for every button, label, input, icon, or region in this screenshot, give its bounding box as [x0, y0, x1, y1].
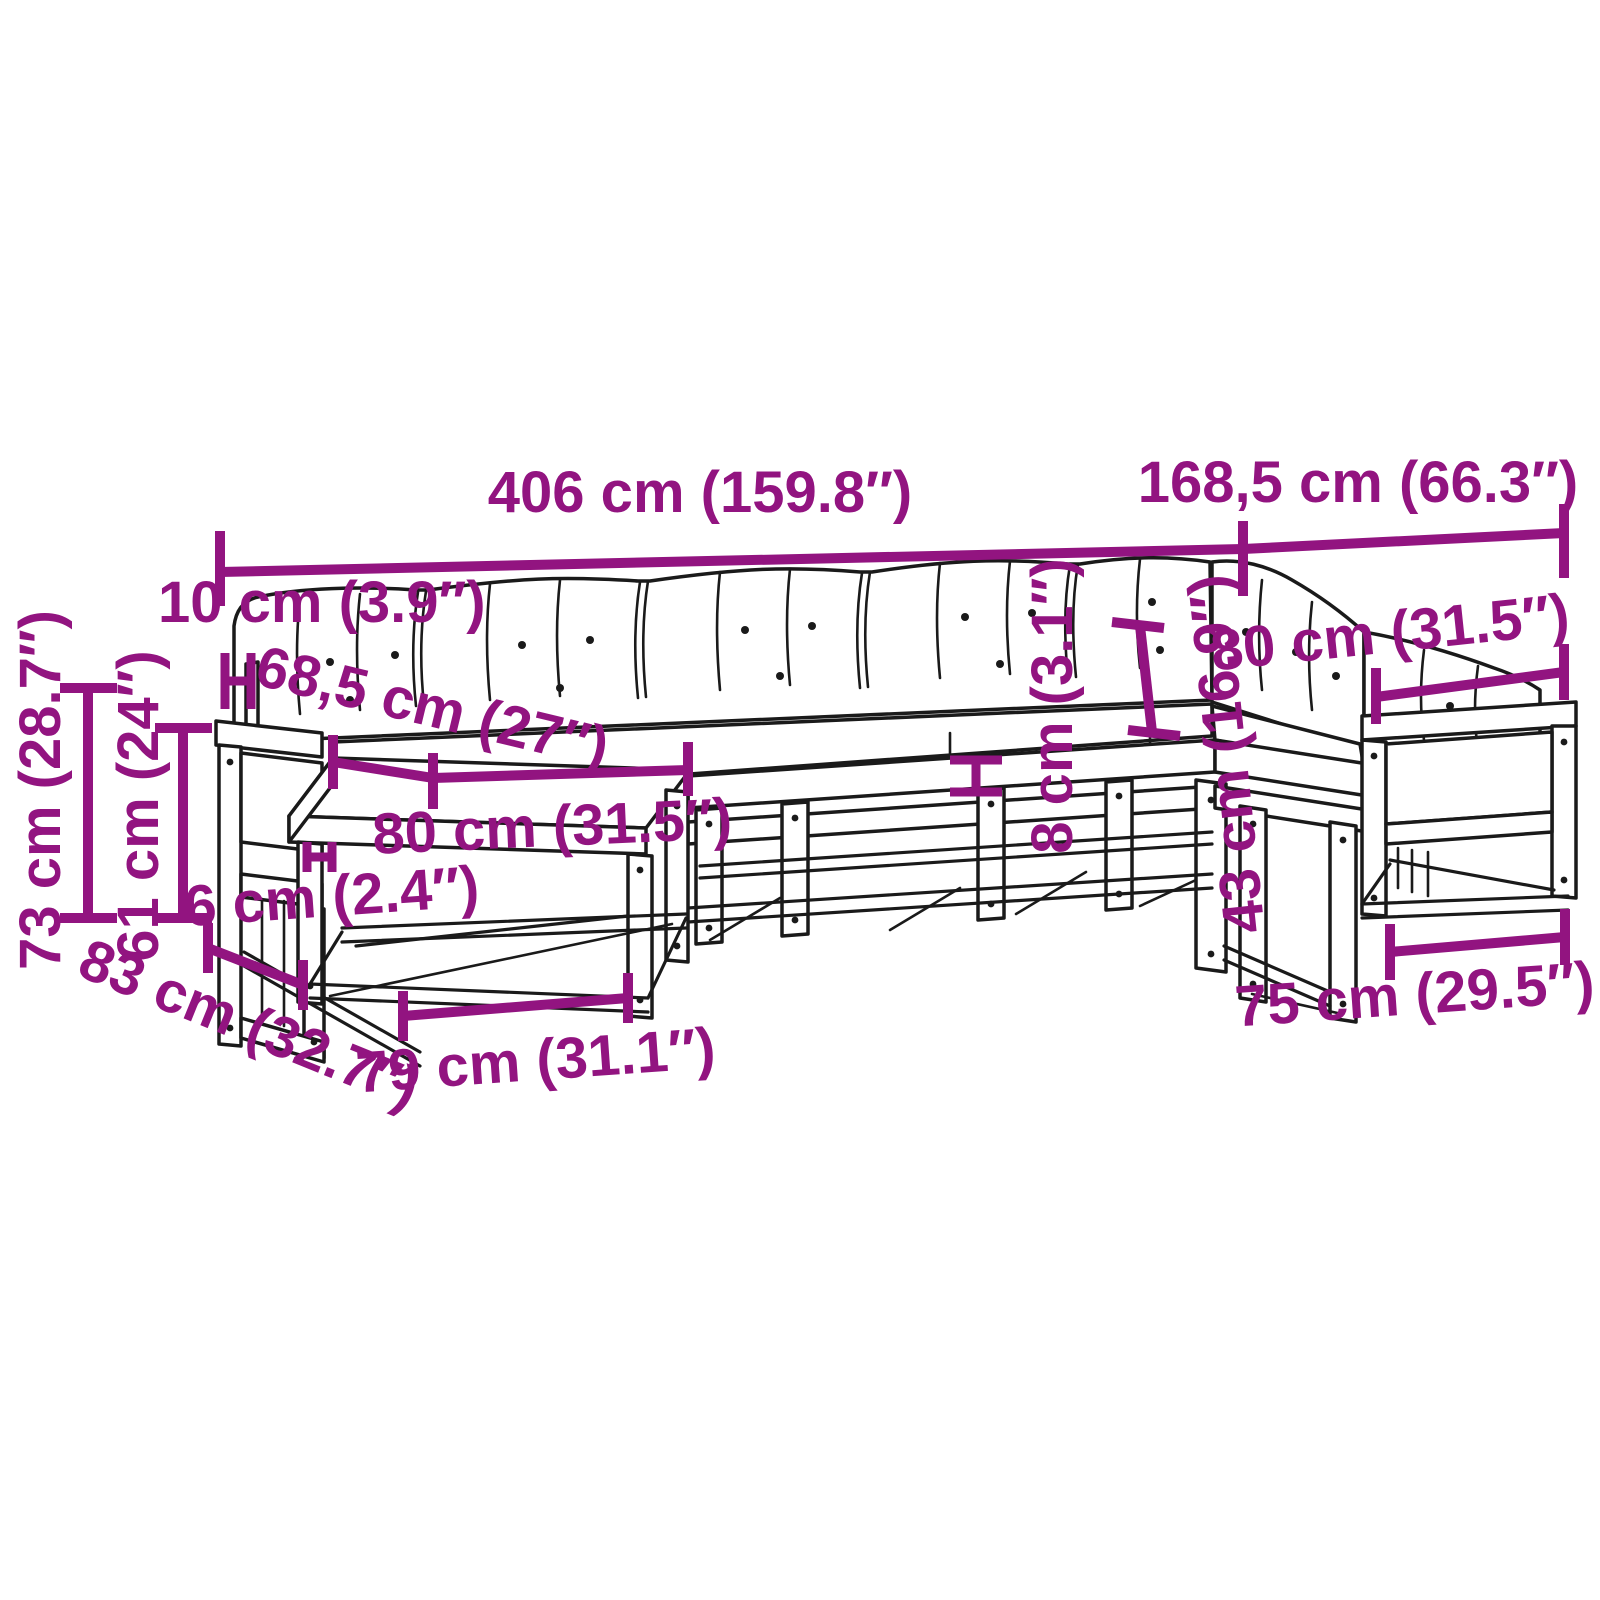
dim-armrest-height-label: 61 cm (24″)	[106, 650, 171, 962]
dim-right-section-width: 168,5 cm (66.3″)	[1138, 450, 1579, 578]
diagram-canvas: 406 cm (159.8″) 168,5 cm (66.3″) 10 cm (…	[0, 0, 1600, 1600]
dim-armrest-height: 61 cm (24″)	[106, 650, 212, 962]
dim-total-height-label: 73 cm (28.7″)	[8, 610, 73, 970]
dim-right-module-inner-width: 75 cm (29.5″)	[1233, 909, 1597, 1040]
dim-total-height: 73 cm (28.7″)	[8, 610, 117, 970]
dim-right-module-inner-width-label: 75 cm (29.5″)	[1233, 950, 1597, 1040]
right-armrest	[1362, 702, 1576, 918]
dim-armrest-top-depth-label: 10 cm (3.9″)	[158, 570, 486, 635]
dim-right-section-width-label: 168,5 cm (66.3″)	[1138, 450, 1579, 515]
dim-seat-board-thickness-label: 8 cm (3.1″)	[1020, 558, 1085, 853]
right-arm-panel	[1386, 732, 1552, 824]
right-arm-base-rails	[1362, 860, 1568, 918]
dim-footstool-width-label: 79 cm (31.1″)	[354, 1016, 718, 1106]
dim-total-width-label: 406 cm (159.8″)	[488, 460, 912, 525]
right-arm-inner-slats	[1398, 848, 1428, 896]
right-arm-back-post	[1552, 726, 1576, 898]
sofa-dimension-diagram: 406 cm (159.8″) 168,5 cm (66.3″) 10 cm (…	[0, 0, 1600, 1600]
